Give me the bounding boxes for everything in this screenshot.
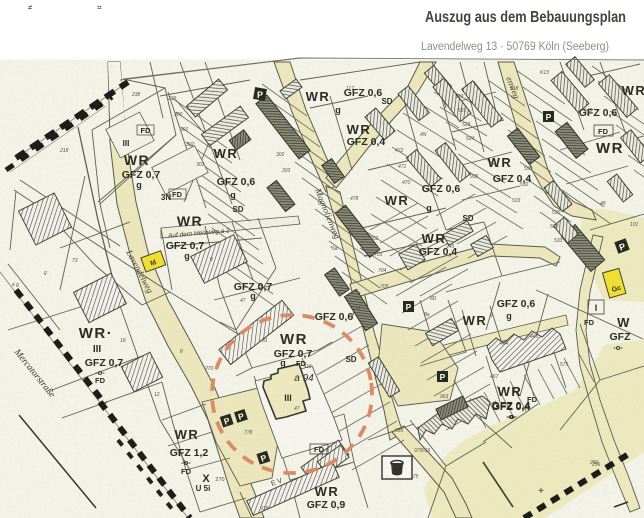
- svg-text:⌗: ⌗: [97, 3, 102, 12]
- svg-text:Auszug aus dem Bebauungsplan: Auszug aus dem Bebauungsplan: [425, 9, 626, 26]
- svg-text:≠: ≠: [28, 3, 33, 12]
- svg-text:Lavendelweg 13 · 50769 Köln (S: Lavendelweg 13 · 50769 Köln (Seeberg): [421, 41, 609, 53]
